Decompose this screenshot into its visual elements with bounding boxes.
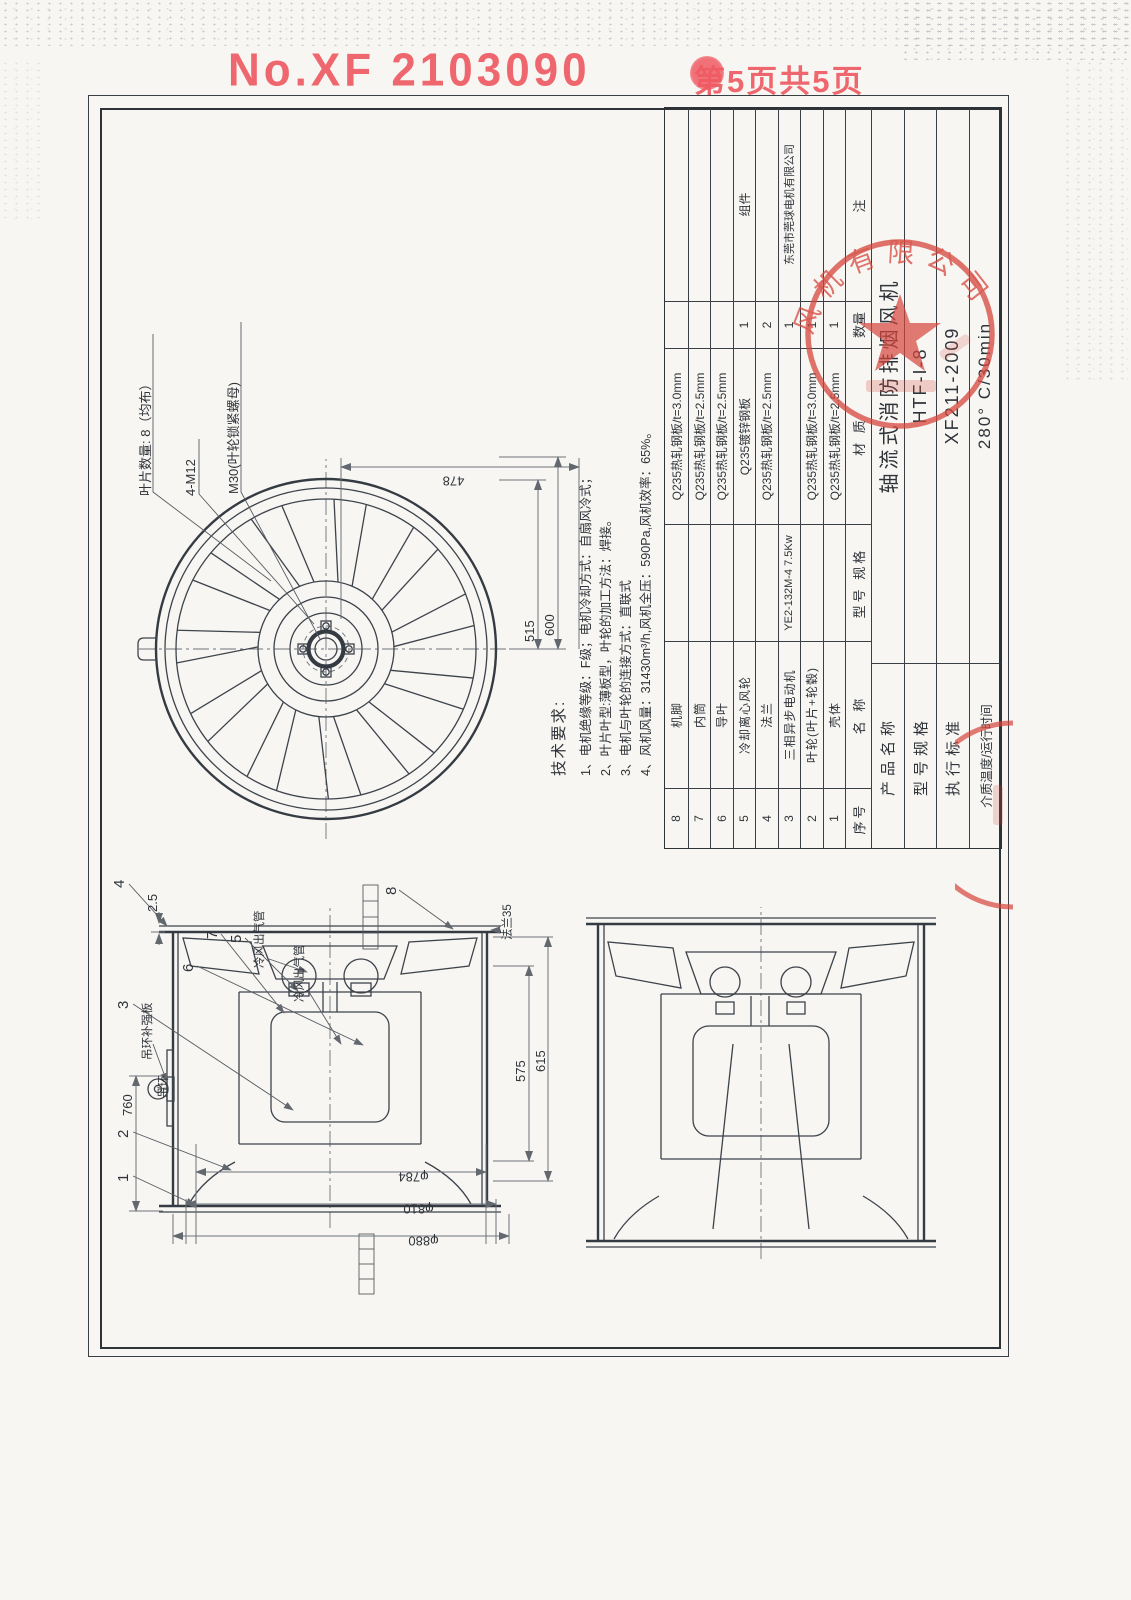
- part-name: 导叶: [710, 641, 733, 788]
- side-view-dimensions: [129, 912, 553, 1244]
- callout-2: 2: [115, 1130, 132, 1138]
- scan-noise-right: [1062, 60, 1131, 380]
- seal-star-icon: [859, 294, 941, 371]
- company-seal: 风机有限公司: [788, 222, 1012, 446]
- part-name: 法兰: [755, 641, 778, 788]
- table-row: 4 法兰 Q235热轧钢板/t=2.5mm 2: [755, 108, 778, 848]
- flange-35-label: 法兰35: [499, 904, 515, 940]
- dim-478: 478: [443, 474, 465, 489]
- part-spec: YE2-132M-4 7.5Kw: [778, 524, 801, 641]
- scan-noise-top: [0, 0, 1131, 46]
- part-name: 冷却离心风轮: [733, 641, 756, 788]
- part-no: 5: [733, 788, 756, 848]
- table-row: 5 冷却离心风轮 Q235镀锌钢板 1 组件: [733, 108, 756, 848]
- blade-count-label: 叶片数量: 8（均布）: [135, 378, 154, 496]
- part-material: Q235热轧钢板/t=2.5mm: [710, 348, 733, 524]
- table-row: 7 内筒 Q235热轧钢板/t=2.5mm: [688, 108, 711, 848]
- part-no: 6: [710, 788, 733, 848]
- technical-requirements: 技术要求: 1、电机绝缘等级：F级；电机冷却方式：自扇风冷式； 2、叶片叶型:薄…: [547, 336, 656, 776]
- part-no: 4: [755, 788, 778, 848]
- part-name: 内筒: [688, 641, 711, 788]
- scanned-drawing-page: No.XF 2103090 第5页共5页: [0, 0, 1131, 1600]
- scan-noise-top-right: [900, 0, 1131, 60]
- callout-7: 7: [204, 931, 221, 939]
- cold-air-pipe-label-2: 冷风出气管: [291, 945, 307, 1003]
- table-row: 3 三相异步电动机 YE2-132M-4 7.5Kw 1 东莞市莞球电机有限公司: [778, 108, 801, 848]
- tech-requirement-item: 1、电机绝缘等级：F级；电机冷却方式：自扇风冷式；: [576, 336, 596, 776]
- bolt-spec-label: 4-M12: [183, 459, 198, 496]
- part-no: 7: [688, 788, 711, 848]
- part-material: Q235镀锌钢板: [733, 348, 756, 524]
- part-no: 1: [823, 788, 846, 848]
- part-spec: [665, 524, 688, 641]
- scan-noise-left: [0, 60, 40, 220]
- callout-6: 6: [180, 964, 197, 972]
- part-name: 壳体: [823, 641, 846, 788]
- table-row: 8 机脚 Q235热轧钢板/t=3.0mm: [665, 108, 688, 848]
- dim-575: 575: [513, 1060, 528, 1082]
- part-spec: [800, 524, 823, 641]
- part-no: 8: [665, 788, 688, 848]
- part-qty: 2: [755, 301, 778, 348]
- dim-615: 615: [533, 1050, 548, 1072]
- header-spec: 型号 规格: [845, 524, 871, 641]
- callout-4: 4: [111, 880, 128, 888]
- part-name: 叶轮(叶片+轮毂): [800, 641, 823, 788]
- part-name: 机脚: [665, 641, 688, 788]
- header-no: 序号: [845, 788, 871, 848]
- nut-spec-label: M30(叶轮锁紧螺母): [223, 382, 242, 494]
- table-row: 2 叶轮(叶片+轮毂) Q235热轧钢板/t=3.0mm 1: [800, 108, 823, 848]
- fan-front-view: [138, 459, 513, 839]
- table-row: 6 导叶 Q235热轧钢板/t=2.5mm: [710, 108, 733, 848]
- eyebolt-plate-label: 吊环补强板: [139, 1003, 155, 1061]
- callout-5: 5: [228, 935, 245, 943]
- part-qty: 1: [733, 301, 756, 348]
- part-qty: [710, 301, 733, 348]
- callout-1: 1: [115, 1174, 132, 1182]
- side-section-view-b: [586, 907, 936, 1259]
- part-note: [755, 108, 778, 301]
- part-qty: [665, 301, 688, 348]
- part-note: [688, 108, 711, 301]
- part-spec: [823, 524, 846, 641]
- header-name: 名 称: [845, 641, 871, 788]
- parts-table: 8 机脚 Q235热轧钢板/t=3.0mm 7 内筒 Q235热轧钢板/t=2.…: [664, 107, 1002, 849]
- tech-requirement-item: 2、叶片叶型:薄板型，叶轮的加工方法：焊接。: [596, 336, 616, 776]
- tech-requirements-title: 技术要求:: [547, 336, 569, 776]
- dim-dia-880: φ880: [408, 1233, 438, 1248]
- callout-3: 3: [115, 1001, 132, 1009]
- title-block-label: 产品名称: [871, 663, 904, 848]
- dim-760: 760: [120, 1094, 135, 1116]
- table-header-row: 序号 名 称 型号 规格 材 质 数量 注: [845, 108, 871, 848]
- part-note: [710, 108, 733, 301]
- cold-air-pipe-label-1: 冷风出气管: [251, 911, 267, 969]
- part-qty: [688, 301, 711, 348]
- part-material: Q235热轧钢板/t=2.5mm: [688, 348, 711, 524]
- part-name: 三相异步电动机: [778, 641, 801, 788]
- part-material: Q235热轧钢板/t=3.0mm: [665, 348, 688, 524]
- part-no: 3: [778, 788, 801, 848]
- table-row: 1 壳体 Q235热轧钢板/t=2.5mm 1: [823, 108, 846, 848]
- part-spec: [733, 524, 756, 641]
- tech-requirement-item: 3、电机与叶轮的连接方式：直联式: [616, 336, 636, 776]
- part-note: 组件: [733, 108, 756, 301]
- document-number-stamp: No.XF 2103090: [228, 45, 591, 98]
- dim-515: 515: [522, 620, 537, 642]
- part-no: 2: [800, 788, 823, 848]
- callout-8: 8: [383, 887, 400, 895]
- dim-2-5: 2.5: [145, 894, 160, 912]
- part-note: [665, 108, 688, 301]
- part-spec: [755, 524, 778, 641]
- part-material: Q235热轧钢板/t=2.5mm: [755, 348, 778, 524]
- side-section-view-a: [148, 885, 501, 1294]
- partial-seal-arc: [955, 715, 1035, 915]
- eyebolt-label: 吊环: [155, 1075, 171, 1098]
- dim-dia-810: φ810: [403, 1201, 433, 1216]
- title-block-label: 型号规格: [904, 663, 937, 848]
- tech-requirement-item: 4、风机风量：31430m³/h,风机全压：590Pa,风机效率：65%。: [636, 336, 656, 776]
- dim-dia-784: φ784: [398, 1169, 428, 1184]
- part-spec: [710, 524, 733, 641]
- part-spec: [688, 524, 711, 641]
